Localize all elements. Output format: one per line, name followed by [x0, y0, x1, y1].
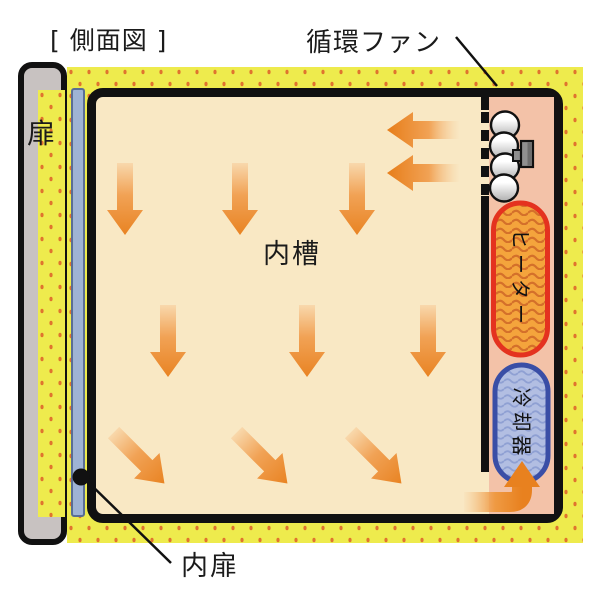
door-label: 扉	[27, 120, 55, 148]
side-view-diagram: ヒーター 冷却器 [ 側面図 ] 循環ファン 扉 内槽 内扉	[0, 0, 600, 600]
chamber-label: 内槽	[263, 241, 321, 268]
inner-door-label: 内扉	[181, 553, 239, 580]
inner-door-strip	[71, 88, 85, 517]
diagram-title: [ 側面図 ]	[50, 28, 167, 53]
conditioning-compartment	[489, 97, 554, 514]
door-insulation-strip	[38, 90, 65, 517]
fan-label: 循環ファン	[306, 30, 441, 56]
